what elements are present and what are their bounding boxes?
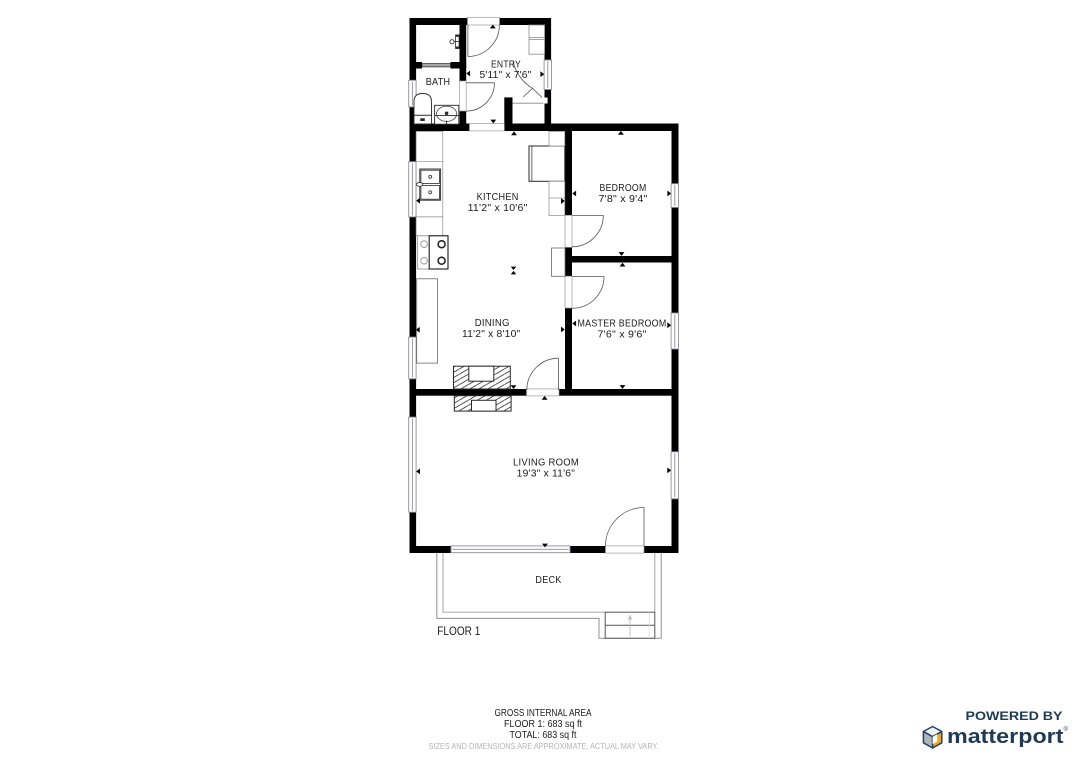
- svg-text:®: ®: [1064, 726, 1069, 733]
- svg-text:TOTAL: 683 sq ft: TOTAL: 683 sq ft: [510, 730, 577, 741]
- svg-text:7'6" x 9'6": 7'6" x 9'6": [598, 330, 647, 341]
- svg-text:SIZES AND DIMENSIONS ARE APPRO: SIZES AND DIMENSIONS ARE APPROXIMATE, AC…: [429, 742, 659, 751]
- svg-text:KITCHEN: KITCHEN: [477, 192, 519, 203]
- svg-text:FLOOR 1: 683 sq ft: FLOOR 1: 683 sq ft: [504, 719, 582, 730]
- svg-text:DINING: DINING: [475, 318, 510, 329]
- svg-text:LIVING ROOM: LIVING ROOM: [513, 458, 579, 469]
- svg-text:GROSS INTERNAL AREA: GROSS INTERNAL AREA: [495, 708, 592, 719]
- svg-text:5'11" x 7'6": 5'11" x 7'6": [480, 70, 532, 81]
- svg-text:BEDROOM: BEDROOM: [600, 183, 647, 194]
- svg-text:FLOOR 1: FLOOR 1: [437, 626, 480, 638]
- svg-text:11'2" x 10'6": 11'2" x 10'6": [468, 203, 528, 214]
- svg-text:19'3" x 11'6": 19'3" x 11'6": [517, 469, 576, 480]
- svg-text:ENTRY: ENTRY: [491, 59, 521, 70]
- svg-text:DECK: DECK: [535, 575, 561, 586]
- svg-text:MASTER BEDROOM: MASTER BEDROOM: [578, 319, 667, 330]
- svg-text:7'8" x 9'4": 7'8" x 9'4": [599, 194, 648, 205]
- svg-text:matterport: matterport: [947, 726, 1064, 748]
- svg-text:BATH: BATH: [426, 77, 451, 88]
- svg-text:11'2" x 8'10": 11'2" x 8'10": [462, 329, 521, 340]
- svg-text:POWERED BY: POWERED BY: [966, 709, 1063, 723]
